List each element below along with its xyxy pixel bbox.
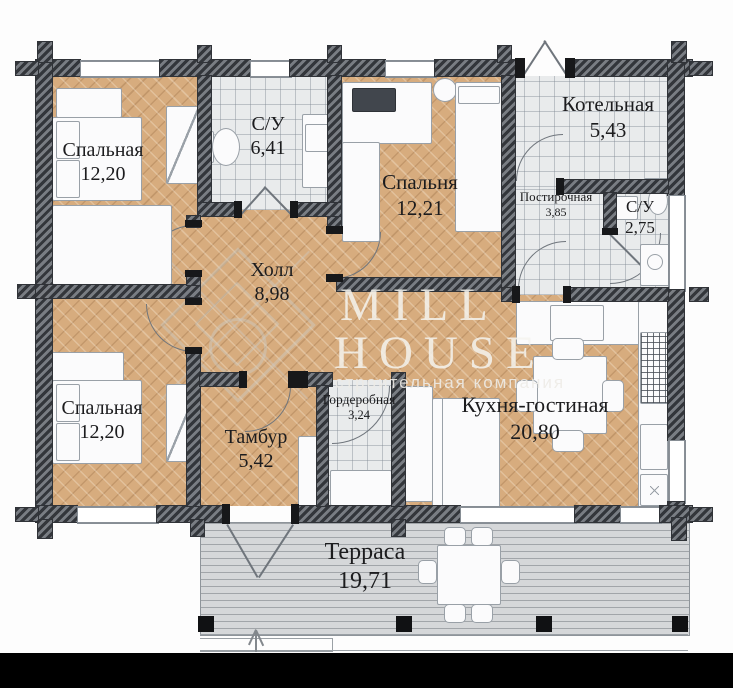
room-name: С/У [198,112,338,136]
window [460,506,577,524]
watermark-logo-circle [209,318,267,376]
wall-segment [293,506,460,522]
chair-symbol [501,560,520,584]
monitor-symbol [352,88,396,112]
room-label-bedroom-top-left: Спальная 12,20 [33,138,173,187]
terrace-steps [200,638,333,652]
room-label-hall: Холл 8,98 [202,258,342,307]
kitchen-sink-symbol [550,305,604,341]
room-name: Терраса [295,538,435,567]
chair-symbol [471,604,493,623]
chair-symbol [444,527,466,546]
stove-symbol [640,332,668,404]
door-jamb [515,58,525,78]
room-area: 5,43 [538,118,678,144]
log-end [690,62,712,75]
terrace-post [396,616,412,632]
stool-symbol [433,78,457,102]
door-jamb [234,201,242,218]
room-name: Котельная [538,92,678,118]
window [620,506,662,524]
room-name: Спальная [33,138,173,162]
chair-symbol [471,527,493,546]
dresser-symbol [56,88,122,118]
floor-plan: MILL HOUSE строительная компания [0,0,733,688]
room-name: Тамбур [188,425,324,449]
washer-drum [647,254,663,270]
door-jamb [563,286,571,303]
log-end [690,508,712,521]
log-end [18,285,38,298]
door-jamb [288,371,308,388]
room-label-terrace: Терраса 19,71 [295,538,435,597]
room-label-bedroom-bottom-left: Спальная 12,20 [32,396,172,445]
wall-segment [160,60,250,76]
room-area: 6,41 [198,136,338,160]
window [668,440,686,504]
log-end [672,518,686,540]
door-jamb [565,58,575,78]
room-area: 3,24 [318,408,400,423]
terrace-post [536,616,552,632]
door-jamb [185,270,202,277]
wall-segment [575,506,620,522]
log-end [38,42,52,62]
room-area: 20,80 [455,419,615,446]
room-area: 12,20 [33,162,173,186]
chair-symbol [552,338,584,360]
log-end [392,520,405,536]
corner-unit-symbol [640,474,668,506]
log-end [498,46,511,62]
window [250,60,292,78]
log-end [198,46,211,62]
door-jamb [185,220,202,227]
log-end [690,288,708,301]
wall-segment [565,288,668,301]
door-leaf [544,40,567,74]
terrace-table-symbol [437,545,501,605]
door-leaf [523,40,546,74]
dresser-symbol [46,352,124,382]
room-label-bathroom-main: С/У 6,41 [198,112,338,161]
room-area: 19,71 [295,567,435,596]
room-name: Спальная [32,396,172,420]
watermark-line1: MILL [340,278,499,332]
room-label-bedroom-top-center: Спальня 12,21 [350,170,490,221]
bottom-black-bar [0,653,733,688]
wall-segment [435,60,523,76]
room-name: Кухня-гостиная [455,392,615,419]
log-end [16,508,38,521]
room-area: 8,98 [202,282,342,306]
room-label-bathroom-small: С/У 2,75 [600,197,680,238]
room-label-vestibule: Тамбур 5,42 [188,425,324,474]
watermark-subtitle: строительная компания [300,373,600,393]
sink-symbol [640,424,668,470]
chair-symbol [444,604,466,623]
room-name: Гордеробная [318,392,400,408]
log-end [191,520,204,536]
terrace-post [672,616,688,632]
room-area: 5,42 [188,449,324,473]
sofa-back-line [442,399,443,507]
log-end [38,520,52,538]
room-area: 2,75 [600,218,680,239]
door-jamb [290,201,298,218]
closet-symbol [52,205,172,285]
room-name: Спальня [350,170,490,196]
wall-segment [292,203,341,216]
log-end [16,62,38,75]
window [385,60,437,78]
door-jamb [185,298,202,305]
window [77,506,159,524]
wall-segment [502,76,515,291]
room-label-boiler: Котельная 5,43 [538,92,678,143]
door-jamb [326,226,343,234]
door-jamb [239,371,247,388]
watermark-line2: HOUSE [334,326,546,380]
wall-segment [668,290,684,440]
log-end [672,42,686,62]
door-jamb [222,504,230,524]
cabinet-symbol [330,470,392,506]
log-end [328,46,341,62]
door-jamb [291,504,299,524]
wall-segment [36,285,200,298]
wall-segment [290,60,385,76]
room-name: Холл [202,258,342,282]
room-label-wardrobe-room: Гордеробная 3,24 [318,392,400,424]
door-jamb [185,347,202,354]
door-jamb [512,286,520,303]
room-label-kitchen-living: Кухня-гостиная 20,80 [455,392,615,446]
room-area: 12,20 [32,420,172,444]
room-area: 12,21 [350,196,490,222]
terrace-post [198,616,214,632]
window [80,60,162,78]
pillow [458,86,500,104]
fridge-symbol [403,386,433,502]
room-name: С/У [600,197,680,218]
